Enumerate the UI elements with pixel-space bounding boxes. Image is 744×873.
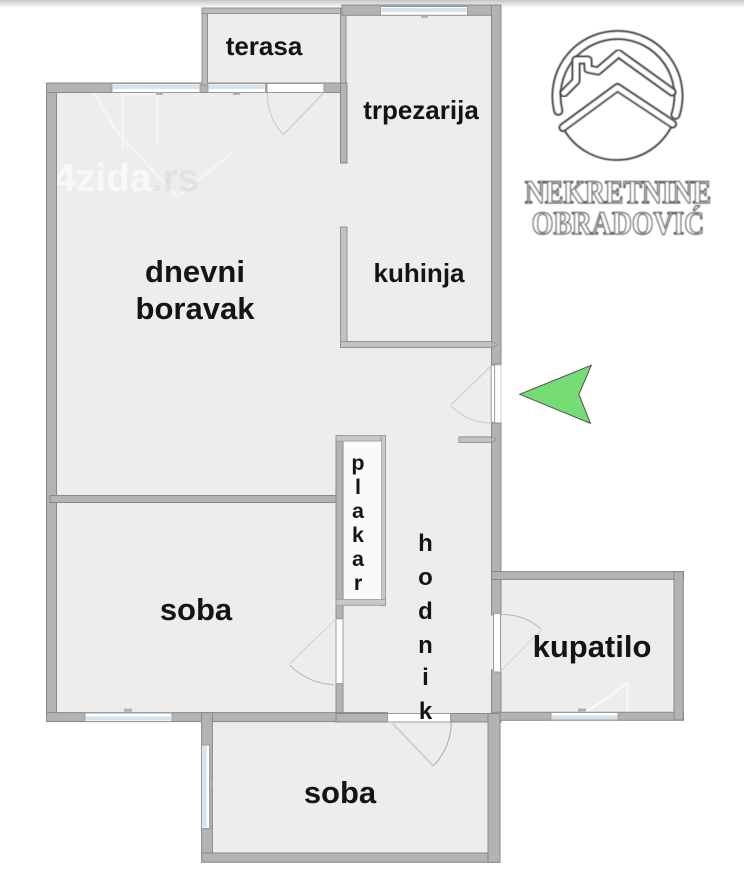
svg-text:soba: soba (304, 775, 377, 810)
svg-text:h: h (418, 530, 433, 557)
svg-text:trpezarija: trpezarija (363, 95, 479, 125)
svg-text:OBRADOVIĆ: OBRADOVIĆ (532, 205, 704, 242)
svg-text:d: d (418, 598, 433, 625)
svg-text:n: n (418, 632, 433, 659)
svg-text:i: i (422, 664, 429, 691)
svg-text:k: k (419, 698, 433, 725)
svg-text:soba: soba (160, 592, 233, 627)
svg-text:o: o (418, 564, 433, 591)
svg-text:terasa: terasa (226, 31, 303, 61)
svg-text:kupatilo: kupatilo (533, 629, 652, 664)
svg-text:a: a (352, 547, 365, 571)
svg-text:r: r (354, 571, 363, 595)
svg-text:p: p (351, 451, 364, 475)
svg-text:4zida.rs: 4zida.rs (54, 157, 199, 200)
svg-text:dnevni: dnevni (145, 254, 245, 289)
svg-text:a: a (352, 499, 365, 523)
svg-text:k: k (352, 523, 364, 547)
svg-text:boravak: boravak (136, 291, 256, 326)
svg-text:kuhinja: kuhinja (373, 258, 465, 288)
svg-text:l: l (355, 475, 361, 499)
